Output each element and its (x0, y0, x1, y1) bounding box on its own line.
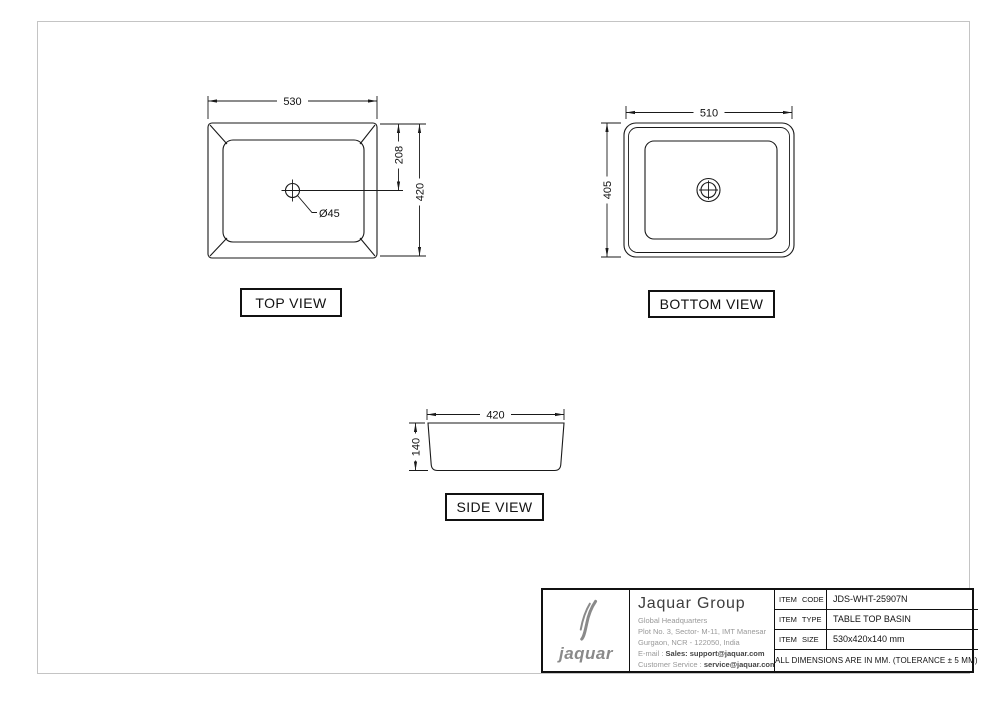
item-code-value: JDS-WHT-25907N (827, 594, 978, 604)
item-info-table: ITEM CODE JDS-WHT-25907N ITEM TYPE TABLE… (775, 590, 978, 671)
dim-text-side-width: 420 (486, 410, 504, 422)
side-view-label: SIDE VIEW (457, 499, 533, 515)
dim-text-side-height: 140 (411, 438, 423, 456)
dim-text-group: 420 (413, 179, 427, 206)
tolerance-note: ALL DIMENSIONS ARE IN MM. (TOLERANCE ± 5… (775, 650, 978, 671)
address-line: Gurgaon, NCR - 122050, India (638, 638, 766, 649)
email-label: E-mail : (638, 649, 666, 658)
service-label: Customer Service : (638, 660, 704, 669)
top-view-label-box: TOP VIEW (240, 288, 342, 317)
title-block: jaquar Jaquar Group Global Headquarters … (541, 588, 974, 673)
jaquar-logo-icon (569, 598, 603, 642)
side-view-label-box: SIDE VIEW (445, 493, 544, 521)
dim-text-group: 208 (392, 142, 406, 169)
side-view-drawing: 420 140 (400, 398, 580, 483)
bottom-view-label: BOTTOM VIEW (660, 296, 764, 312)
dim-text-top-height: 420 (415, 183, 427, 201)
service-line: Customer Service : service@jaquar.com (638, 660, 766, 671)
item-size-label: ITEM SIZE (775, 630, 827, 649)
company-cell: Jaquar Group Global Headquarters Plot No… (629, 590, 775, 671)
drain-crosshair (699, 181, 718, 200)
service-value: service@jaquar.com (704, 660, 775, 669)
spec-sheet: 530 208 420 Ø45 TOP VIEW (0, 0, 1000, 707)
email-value: Sales: support@jaquar.com (666, 649, 765, 658)
drain-leader-line (298, 196, 318, 213)
dim-text-hole-offset: 208 (394, 146, 406, 164)
company-name: Jaquar Group (638, 595, 766, 613)
top-view-label: TOP VIEW (255, 295, 326, 311)
jaquar-wordmark: jaquar (559, 644, 613, 664)
item-code-label: ITEM CODE (775, 590, 827, 609)
item-type-label: ITEM TYPE (775, 610, 827, 629)
side-view-profile (428, 423, 564, 471)
item-size-value: 530x420x140 mm (827, 634, 978, 644)
item-type-row: ITEM TYPE TABLE TOP BASIN (775, 610, 978, 630)
dim-text-bottom-height: 405 (602, 181, 614, 199)
dim-text-top-width: 530 (283, 96, 301, 108)
dim-text-drain-diameter: Ø45 (319, 208, 340, 220)
item-size-row: ITEM SIZE 530x420x140 mm (775, 630, 978, 650)
address-line: Plot No. 3, Sector- M-11, IMT Manesar (638, 627, 766, 638)
top-view-drawing: 530 208 420 Ø45 (190, 85, 440, 280)
item-type-value: TABLE TOP BASIN (827, 614, 978, 624)
logo-cell: jaquar (543, 590, 629, 671)
dim-text-group: 140 (409, 434, 423, 461)
address-line: Global Headquarters (638, 616, 766, 627)
bottom-view-label-box: BOTTOM VIEW (648, 290, 775, 318)
dim-text-bottom-width: 510 (700, 108, 718, 120)
bottom-view-drawing: 510 405 (580, 85, 840, 280)
top-view-inner-basin (223, 140, 364, 242)
item-code-row: ITEM CODE JDS-WHT-25907N (775, 590, 978, 610)
email-line: E-mail : Sales: support@jaquar.com (638, 649, 766, 660)
dim-text-group: 405 (601, 177, 615, 204)
